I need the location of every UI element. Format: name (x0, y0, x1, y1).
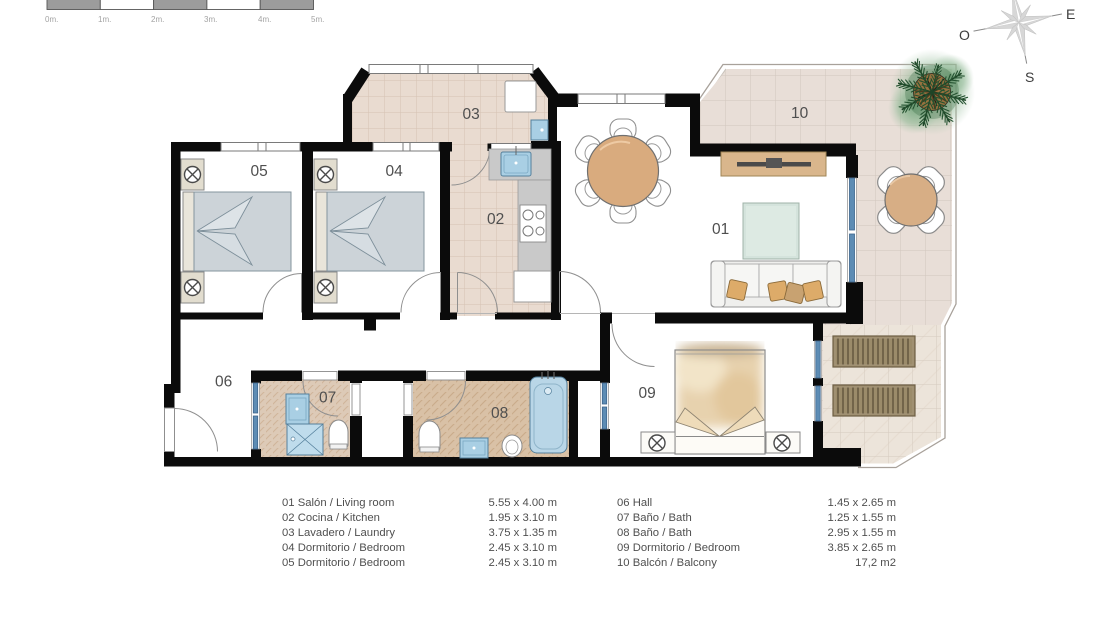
svg-text:17,2 m2: 17,2 m2 (855, 557, 896, 569)
svg-text:5m.: 5m. (311, 15, 324, 24)
svg-text:10: 10 (791, 105, 809, 122)
svg-text:07: 07 (319, 390, 336, 407)
svg-text:1m.: 1m. (98, 15, 111, 24)
svg-text:06: 06 (215, 374, 232, 391)
svg-text:02 Cocina / Kitchen: 02 Cocina / Kitchen (282, 512, 380, 524)
svg-text:5.55 x 4.00 m: 5.55 x 4.00 m (489, 497, 557, 509)
svg-text:10 Balcón / Balcony: 10 Balcón / Balcony (617, 557, 717, 569)
svg-text:09 Dormitorio / Bedroom: 09 Dormitorio / Bedroom (617, 542, 740, 554)
svg-text:2.45 x 3.10 m: 2.45 x 3.10 m (489, 542, 557, 554)
svg-text:04: 04 (386, 163, 404, 180)
svg-text:05 Dormitorio / Bedroom: 05 Dormitorio / Bedroom (282, 557, 405, 569)
svg-text:04 Dormitorio / Bedroom: 04 Dormitorio / Bedroom (282, 542, 405, 554)
svg-text:05: 05 (251, 163, 268, 180)
svg-text:08 Baño / Bath: 08 Baño / Bath (617, 527, 692, 539)
svg-text:06 Hall: 06 Hall (617, 497, 652, 509)
svg-text:1.45 x 2.65 m: 1.45 x 2.65 m (828, 497, 896, 509)
svg-text:03: 03 (463, 106, 480, 123)
svg-text:08: 08 (491, 405, 508, 422)
svg-text:09: 09 (639, 385, 656, 402)
svg-text:3.75 x 1.35 m: 3.75 x 1.35 m (489, 527, 557, 539)
svg-text:2.95 x 1.55 m: 2.95 x 1.55 m (828, 527, 896, 539)
svg-text:07 Baño / Bath: 07 Baño / Bath (617, 512, 692, 524)
svg-text:S: S (1025, 69, 1034, 85)
svg-text:4m.: 4m. (258, 15, 271, 24)
svg-text:3.85 x 2.65 m: 3.85 x 2.65 m (828, 542, 896, 554)
svg-text:1.95 x 3.10 m: 1.95 x 3.10 m (489, 512, 557, 524)
svg-text:01: 01 (712, 221, 729, 238)
svg-text:03 Lavadero / Laundry: 03 Lavadero / Laundry (282, 527, 395, 539)
svg-text:O: O (959, 27, 970, 43)
svg-text:0m.: 0m. (45, 15, 58, 24)
svg-text:02: 02 (487, 211, 504, 228)
svg-text:E: E (1066, 6, 1075, 22)
svg-text:01 Salón / Living room: 01 Salón / Living room (282, 497, 394, 509)
svg-text:1.25 x 1.55 m: 1.25 x 1.55 m (828, 512, 896, 524)
svg-text:2m.: 2m. (151, 15, 164, 24)
svg-text:2.45 x 3.10 m: 2.45 x 3.10 m (489, 557, 557, 569)
svg-text:3m.: 3m. (204, 15, 217, 24)
